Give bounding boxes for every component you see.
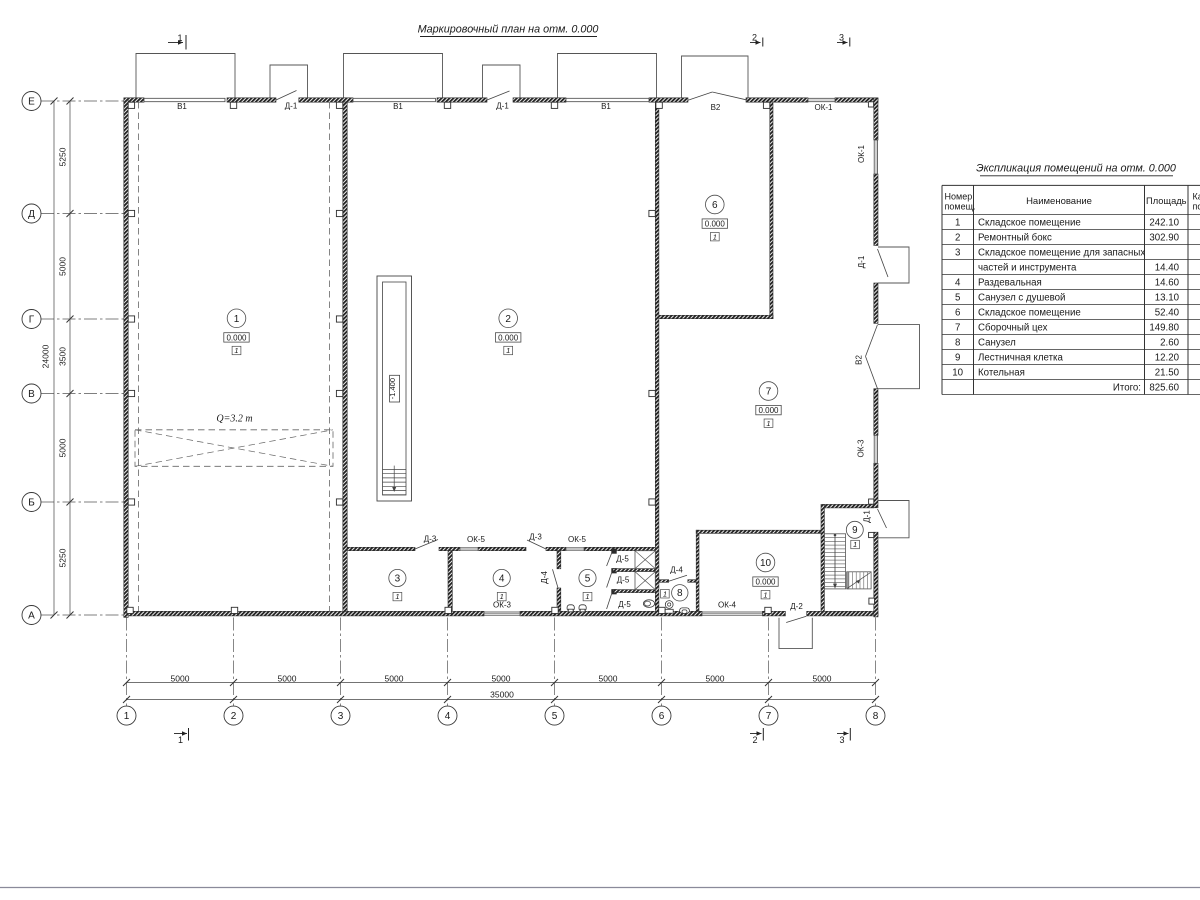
- svg-text:Д-5: Д-5: [616, 555, 629, 564]
- svg-text:помещ.: помещ.: [945, 201, 976, 211]
- svg-text:ОК-1: ОК-1: [857, 144, 866, 163]
- svg-text:2: 2: [752, 735, 757, 745]
- svg-text:Наименование: Наименование: [1026, 196, 1092, 207]
- svg-text:2: 2: [231, 711, 237, 722]
- svg-text:В1: В1: [177, 102, 187, 111]
- svg-text:8: 8: [955, 338, 960, 349]
- svg-text:Е: Е: [28, 97, 35, 108]
- svg-text:Санузел: Санузел: [978, 338, 1016, 349]
- svg-text:В2: В2: [711, 103, 721, 112]
- svg-text:Д-2: Д-2: [790, 602, 803, 611]
- svg-text:1: 1: [763, 590, 767, 599]
- svg-text:2: 2: [955, 233, 960, 244]
- svg-text:1: 1: [766, 419, 770, 428]
- svg-text:2.60: 2.60: [1160, 338, 1179, 349]
- svg-text:825.60: 825.60: [1149, 383, 1179, 394]
- svg-text:3: 3: [338, 711, 344, 722]
- svg-text:0.000: 0.000: [755, 578, 776, 587]
- svg-text:Ремонтный бокс: Ремонтный бокс: [978, 233, 1052, 244]
- svg-text:6: 6: [955, 308, 960, 319]
- svg-text:10: 10: [952, 368, 963, 379]
- svg-text:302.90: 302.90: [1149, 233, 1179, 244]
- svg-text:Экспликация помещений на отм.: Экспликация помещений на отм. 0.000: [976, 163, 1176, 175]
- svg-text:частей и инструмента: частей и инструмента: [978, 263, 1077, 274]
- svg-text:Д-5: Д-5: [618, 600, 631, 609]
- svg-text:5000: 5000: [813, 674, 832, 684]
- svg-text:10: 10: [760, 558, 772, 569]
- svg-text:12.20: 12.20: [1155, 353, 1180, 364]
- svg-text:1: 1: [500, 592, 504, 601]
- svg-text:ОК-5: ОК-5: [467, 535, 486, 544]
- svg-text:242.10: 242.10: [1149, 218, 1179, 229]
- svg-text:Складское помещение для запасн: Складское помещение для запасных: [978, 248, 1145, 259]
- svg-text:5: 5: [552, 711, 558, 722]
- svg-text:1: 1: [506, 346, 510, 355]
- svg-text:Лестничная клетка: Лестничная клетка: [978, 353, 1063, 364]
- svg-text:9: 9: [852, 525, 857, 536]
- svg-text:5000: 5000: [599, 674, 618, 684]
- svg-text:1: 1: [234, 346, 238, 355]
- svg-text:5250: 5250: [58, 147, 68, 166]
- svg-text:0.000: 0.000: [705, 220, 726, 229]
- svg-text:6: 6: [712, 200, 718, 211]
- svg-text:5000: 5000: [706, 674, 725, 684]
- svg-text:Санузел с душевой: Санузел с душевой: [978, 293, 1065, 304]
- svg-text:5: 5: [585, 574, 591, 585]
- svg-text:Д-4: Д-4: [670, 566, 683, 575]
- svg-text:Сборочный цех: Сборочный цех: [978, 323, 1048, 334]
- svg-text:В: В: [28, 389, 35, 400]
- svg-text:7: 7: [955, 323, 960, 334]
- svg-text:3: 3: [395, 574, 401, 585]
- svg-text:4: 4: [445, 711, 451, 722]
- svg-text:0.000: 0.000: [498, 333, 519, 342]
- svg-text:13.10: 13.10: [1155, 293, 1180, 304]
- svg-text:0.000: 0.000: [226, 333, 247, 342]
- svg-text:7: 7: [766, 387, 772, 398]
- svg-text:Д-1: Д-1: [285, 102, 298, 111]
- svg-text:Q=3.2 m: Q=3.2 m: [216, 414, 252, 425]
- svg-text:5000: 5000: [492, 674, 511, 684]
- svg-text:4: 4: [499, 574, 505, 585]
- svg-text:по: по: [1193, 201, 1200, 211]
- svg-text:Номер: Номер: [945, 191, 973, 201]
- svg-text:ОК-5: ОК-5: [568, 535, 587, 544]
- svg-text:1: 1: [395, 592, 399, 601]
- svg-text:14.40: 14.40: [1155, 263, 1180, 274]
- svg-text:Маркировочный план на отм. 0.0: Маркировочный план на отм. 0.000: [418, 24, 599, 36]
- svg-text:Д-1: Д-1: [496, 102, 509, 111]
- svg-text:В1: В1: [601, 102, 611, 111]
- svg-text:4: 4: [955, 278, 961, 289]
- svg-text:Складское помещение: Складское помещение: [978, 308, 1081, 319]
- svg-text:1: 1: [234, 314, 240, 325]
- svg-text:1: 1: [713, 232, 717, 241]
- svg-text:1: 1: [955, 218, 960, 229]
- svg-text:Б: Б: [28, 498, 35, 509]
- svg-text:5000: 5000: [278, 674, 297, 684]
- svg-text:Д-1: Д-1: [857, 255, 866, 268]
- svg-text:В1: В1: [393, 102, 403, 111]
- svg-text:ОК-3: ОК-3: [493, 601, 512, 610]
- svg-text:ОК-1: ОК-1: [815, 103, 834, 112]
- svg-text:Раздевальная: Раздевальная: [978, 278, 1042, 289]
- svg-text:3: 3: [955, 248, 960, 259]
- svg-text:7: 7: [766, 711, 772, 722]
- svg-text:2: 2: [505, 314, 511, 325]
- svg-text:5000: 5000: [58, 438, 68, 457]
- svg-text:3: 3: [839, 735, 844, 745]
- svg-text:Д: Д: [28, 209, 35, 220]
- svg-text:52.40: 52.40: [1155, 308, 1180, 319]
- svg-text:1: 1: [853, 540, 857, 549]
- svg-text:Д-1: Д-1: [863, 510, 872, 523]
- svg-text:1: 1: [663, 589, 667, 598]
- svg-text:8: 8: [873, 711, 879, 722]
- svg-text:5250: 5250: [58, 548, 68, 567]
- svg-text:-1.400: -1.400: [388, 378, 397, 399]
- svg-text:ОК-3: ОК-3: [857, 439, 866, 458]
- svg-text:Котельная: Котельная: [978, 368, 1025, 379]
- svg-text:8: 8: [677, 588, 683, 599]
- svg-text:Д-4: Д-4: [540, 571, 549, 584]
- svg-text:1: 1: [585, 592, 589, 601]
- svg-text:14.60: 14.60: [1155, 278, 1180, 289]
- svg-text:0.000: 0.000: [758, 406, 779, 415]
- svg-text:21.50: 21.50: [1155, 368, 1180, 379]
- svg-text:3500: 3500: [58, 347, 68, 366]
- svg-text:9: 9: [955, 353, 960, 364]
- svg-text:6: 6: [659, 711, 665, 722]
- svg-text:Складское помещение: Складское помещение: [978, 218, 1081, 229]
- svg-text:Д-3: Д-3: [529, 533, 542, 542]
- svg-text:1: 1: [124, 711, 130, 722]
- svg-text:Г: Г: [29, 315, 35, 326]
- svg-text:Площадь: Площадь: [1146, 196, 1187, 206]
- svg-text:24000: 24000: [41, 344, 51, 368]
- svg-text:ОК-4: ОК-4: [718, 601, 737, 610]
- svg-text:Д-5: Д-5: [617, 576, 630, 585]
- svg-text:149.80: 149.80: [1149, 323, 1179, 334]
- svg-text:Ка: Ка: [1193, 191, 1200, 201]
- svg-text:5000: 5000: [171, 674, 190, 684]
- svg-text:Итого:: Итого:: [1113, 383, 1141, 394]
- svg-text:1: 1: [178, 735, 183, 745]
- svg-text:5000: 5000: [58, 257, 68, 276]
- svg-text:А: А: [28, 611, 35, 622]
- svg-text:35000: 35000: [490, 689, 514, 699]
- svg-text:5: 5: [955, 293, 960, 304]
- svg-text:Д-3: Д-3: [424, 535, 437, 544]
- svg-text:В2: В2: [855, 355, 864, 365]
- svg-text:5000: 5000: [385, 674, 404, 684]
